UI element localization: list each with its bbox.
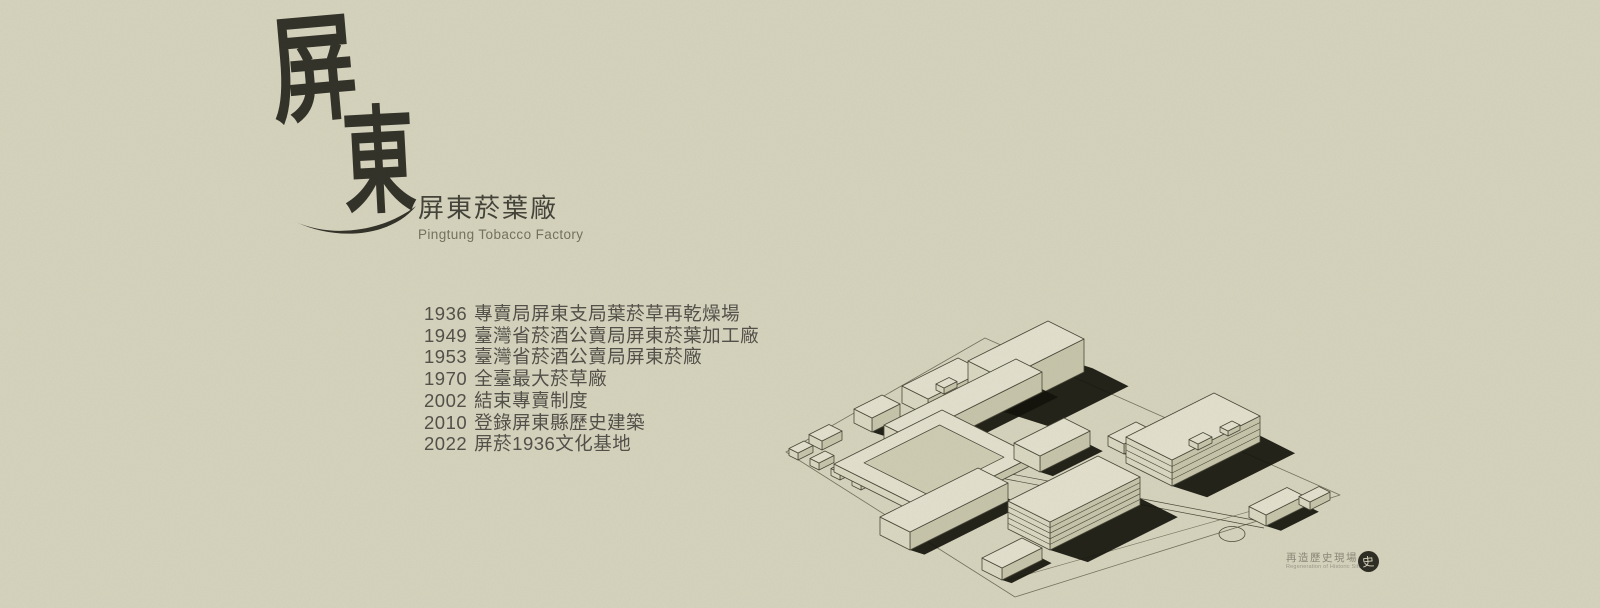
brush-tail-stroke <box>0 0 480 280</box>
page-title: 屏東菸葉廠 <box>418 192 583 225</box>
timeline-event: 臺灣省菸酒公賣局屏東菸廠 <box>474 346 702 367</box>
timeline-entry: 1936專賣局屏東支局葉菸草再乾燥場 <box>424 303 759 325</box>
credit-text-en: Regeneration of Historic Sites <box>1286 564 1396 571</box>
credit-seal-icon: 史 <box>1358 551 1379 572</box>
factory-isometric-drawing <box>770 318 1350 608</box>
timeline-year: 2010 <box>424 412 467 433</box>
timeline-year: 2002 <box>424 390 467 411</box>
title-block: 屏東菸葉廠 Pingtung Tobacco Factory <box>418 192 583 242</box>
timeline-year: 1970 <box>424 368 467 389</box>
poster: 屏 東 屏東菸葉廠 Pingtung Tobacco Factory 1936專… <box>0 0 1600 608</box>
timeline-year: 1953 <box>424 346 467 367</box>
timeline-event: 屏菸1936文化基地 <box>474 433 631 454</box>
timeline-entry: 2002結束專賣制度 <box>424 390 759 412</box>
timeline-event: 結束專賣制度 <box>474 390 588 411</box>
timeline-event: 登錄屏東縣歷史建築 <box>474 412 645 433</box>
timeline-entry: 1970全臺最大菸草廠 <box>424 368 759 390</box>
timeline-year: 1936 <box>424 303 467 324</box>
credit-text-zh: 再造歷史現場 <box>1286 552 1396 564</box>
timeline-entry: 2010登錄屏東縣歷史建築 <box>424 412 759 434</box>
timeline-event: 專賣局屏東支局葉菸草再乾燥場 <box>474 303 740 324</box>
timeline-event: 全臺最大菸草廠 <box>474 368 607 389</box>
timeline-entry: 1949臺灣省菸酒公賣局屏東菸葉加工廠 <box>424 325 759 347</box>
timeline-year: 1949 <box>424 325 467 346</box>
timeline-event: 臺灣省菸酒公賣局屏東菸葉加工廠 <box>474 325 759 346</box>
page-subtitle: Pingtung Tobacco Factory <box>418 227 583 242</box>
timeline-entry: 1953臺灣省菸酒公賣局屏東菸廠 <box>424 346 759 368</box>
timeline-year: 2022 <box>424 433 467 454</box>
program-credit: 再造歷史現場 Regeneration of Historic Sites 史 <box>1286 552 1396 580</box>
history-timeline: 1936專賣局屏東支局葉菸草再乾燥場 1949臺灣省菸酒公賣局屏東菸葉加工廠 1… <box>424 303 759 455</box>
timeline-entry: 2022屏菸1936文化基地 <box>424 433 759 455</box>
seal-glyph: 史 <box>1362 555 1375 568</box>
calligraphy-logo: 屏 東 <box>0 0 480 280</box>
